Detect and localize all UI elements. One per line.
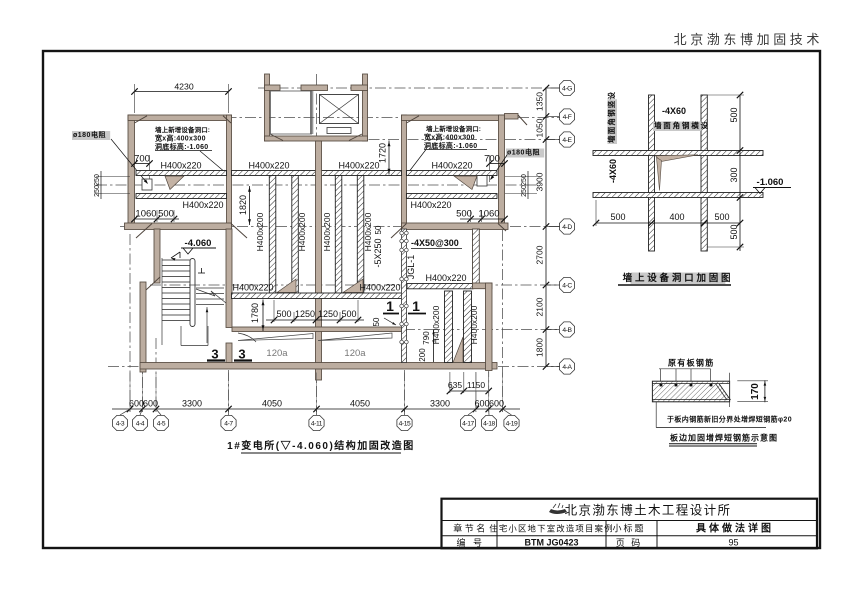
svg-text:600: 600 xyxy=(143,399,158,409)
svg-text:H400x220: H400x220 xyxy=(248,161,289,171)
svg-text:4-19: 4-19 xyxy=(506,420,518,427)
svg-text:170: 170 xyxy=(750,383,761,400)
svg-text:北京渤东博土木工程设计所: 北京渤东博土木工程设计所 xyxy=(565,503,732,518)
svg-text:50: 50 xyxy=(374,225,383,234)
svg-text:500: 500 xyxy=(610,212,625,222)
svg-text:4-3: 4-3 xyxy=(116,420,125,427)
svg-text:400: 400 xyxy=(669,212,684,222)
svg-text:600: 600 xyxy=(474,399,489,409)
svg-text:700: 700 xyxy=(484,154,500,165)
svg-text:4-5: 4-5 xyxy=(157,420,166,427)
svg-text:3300: 3300 xyxy=(182,399,202,409)
svg-text:H400x200: H400x200 xyxy=(297,212,307,251)
svg-text:500: 500 xyxy=(456,209,472,220)
svg-text:H400x200: H400x200 xyxy=(469,305,479,344)
svg-text:北京渤东博加固技术: 北京渤东博加固技术 xyxy=(674,32,823,47)
svg-text:95: 95 xyxy=(728,538,738,548)
svg-text:4-7: 4-7 xyxy=(224,420,233,427)
svg-text:120a: 120a xyxy=(266,348,288,359)
svg-text:500: 500 xyxy=(729,107,739,122)
svg-text:1250: 1250 xyxy=(295,309,315,319)
svg-text:洞底标高:-1.060: 洞底标高:-1.060 xyxy=(155,142,208,151)
svg-text:2100: 2100 xyxy=(535,297,545,316)
svg-text:墙面角钢横设: 墙面角钢横设 xyxy=(654,120,710,130)
svg-text:300: 300 xyxy=(729,167,739,182)
svg-text:H400x200: H400x200 xyxy=(363,212,373,251)
svg-text:1: 1 xyxy=(412,298,420,314)
svg-text:住宅小区地下室改造项目案例: 住宅小区地下室改造项目案例 xyxy=(489,524,613,534)
svg-text:BTM JG0423: BTM JG0423 xyxy=(524,538,578,548)
svg-text:H400x220: H400x220 xyxy=(338,161,379,171)
svg-text:4-B: 4-B xyxy=(562,327,572,334)
svg-text:-4X60: -4X60 xyxy=(662,106,686,116)
svg-text:250: 250 xyxy=(521,174,528,186)
svg-text:500: 500 xyxy=(714,212,729,222)
svg-text:120a: 120a xyxy=(344,348,366,359)
svg-text:1#变电所(▽-4.060)结构加固改造图: 1#变电所(▽-4.060)结构加固改造图 xyxy=(227,439,415,452)
svg-text:墙上新增设备洞口:: 墙上新增设备洞口: xyxy=(426,124,481,133)
svg-text:4-17: 4-17 xyxy=(462,420,474,427)
svg-text:700: 700 xyxy=(134,154,150,165)
svg-text:墙上新增设备洞口:: 墙上新增设备洞口: xyxy=(155,125,210,134)
svg-text:250: 250 xyxy=(94,174,101,186)
svg-text:小标题: 小标题 xyxy=(612,523,645,534)
svg-text:4-11: 4-11 xyxy=(311,420,323,427)
svg-text:H400x200: H400x200 xyxy=(431,305,441,344)
svg-text:250: 250 xyxy=(521,185,528,197)
svg-text:ø180电阻: ø180电阻 xyxy=(507,148,540,157)
svg-text:ø180电阻: ø180电阻 xyxy=(73,130,106,139)
svg-text:章节名: 章节名 xyxy=(453,523,488,534)
svg-text:-4.060: -4.060 xyxy=(185,238,212,249)
svg-text:-4X60: -4X60 xyxy=(608,159,618,183)
svg-text:4050: 4050 xyxy=(350,399,370,409)
svg-text:墙上设备洞口加固图: 墙上设备洞口加固图 xyxy=(623,272,734,284)
svg-text:3: 3 xyxy=(211,347,218,362)
svg-text:H400x220: H400x220 xyxy=(425,273,466,283)
svg-text:宽x高:400x300: 宽x高:400x300 xyxy=(423,133,475,142)
svg-text:洞底标高:-1.060: 洞底标高:-1.060 xyxy=(424,141,477,150)
svg-text:4-15: 4-15 xyxy=(399,420,411,427)
svg-text:页 码: 页 码 xyxy=(616,538,643,548)
svg-text:墙面角钢竖设: 墙面角钢竖设 xyxy=(606,91,616,143)
svg-text:4-C: 4-C xyxy=(562,282,572,289)
svg-text:H400x200: H400x200 xyxy=(255,212,265,251)
svg-text:250: 250 xyxy=(94,185,101,197)
svg-text:500: 500 xyxy=(276,309,291,319)
svg-text:1720: 1720 xyxy=(378,143,388,163)
svg-text:4-4: 4-4 xyxy=(136,420,145,427)
svg-text:1780: 1780 xyxy=(250,303,260,323)
svg-text:3900: 3900 xyxy=(535,172,545,191)
svg-text:板边加固增焊短钢筋示意图: 板边加固增焊短钢筋示意图 xyxy=(670,433,778,443)
svg-text:1350: 1350 xyxy=(535,92,545,111)
svg-text:-4X50@300: -4X50@300 xyxy=(411,238,459,248)
svg-text:2700: 2700 xyxy=(535,245,545,264)
svg-text:H400x220: H400x220 xyxy=(431,161,472,171)
svg-text:4-G: 4-G xyxy=(562,85,572,92)
svg-text:1050: 1050 xyxy=(535,118,545,137)
svg-text:-5X250: -5X250 xyxy=(373,238,383,267)
svg-text:4-E: 4-E xyxy=(562,137,572,144)
svg-text:H400x220: H400x220 xyxy=(410,200,451,210)
svg-text:500: 500 xyxy=(341,309,356,319)
svg-text:790: 790 xyxy=(422,331,431,345)
svg-text:500: 500 xyxy=(158,209,174,220)
svg-text:1: 1 xyxy=(386,298,394,314)
svg-text:500: 500 xyxy=(729,224,739,239)
svg-text:1800: 1800 xyxy=(535,338,545,357)
svg-text:宽x高:400x300: 宽x高:400x300 xyxy=(154,134,206,143)
svg-text:-1.060: -1.060 xyxy=(757,177,784,188)
svg-text:于板内钢筋新旧分界处增焊短钢筋φ20: 于板内钢筋新旧分界处增焊短钢筋φ20 xyxy=(667,415,792,424)
svg-text:4050: 4050 xyxy=(262,399,282,409)
svg-text:H400x220: H400x220 xyxy=(359,283,400,293)
svg-text:H400x220: H400x220 xyxy=(160,161,201,171)
svg-text:H400x220: H400x220 xyxy=(232,283,273,293)
svg-text:600: 600 xyxy=(129,399,144,409)
svg-text:H400x220: H400x220 xyxy=(182,200,223,210)
svg-text:H400x200: H400x200 xyxy=(322,212,332,251)
svg-text:3300: 3300 xyxy=(430,399,450,409)
svg-text:4-18: 4-18 xyxy=(483,420,495,427)
svg-text:1820: 1820 xyxy=(238,195,248,215)
svg-text:4-D: 4-D xyxy=(562,224,572,231)
svg-text:600: 600 xyxy=(489,399,504,409)
svg-text:50: 50 xyxy=(372,317,381,326)
svg-text:具体做法详图: 具体做法详图 xyxy=(695,522,774,535)
svg-text:4230: 4230 xyxy=(174,82,193,92)
svg-text:4-F: 4-F xyxy=(563,114,572,121)
svg-text:JGL-1: JGL-1 xyxy=(406,255,416,280)
svg-text:编 号: 编 号 xyxy=(456,537,484,548)
svg-text:1060: 1060 xyxy=(478,209,499,220)
svg-text:原有板钢筋: 原有板钢筋 xyxy=(668,358,715,368)
svg-text:200: 200 xyxy=(418,348,427,362)
svg-text:1250: 1250 xyxy=(318,309,338,319)
svg-text:4-A: 4-A xyxy=(562,364,572,371)
svg-text:635: 635 xyxy=(448,380,462,390)
svg-text:1060: 1060 xyxy=(135,209,156,220)
svg-text:3: 3 xyxy=(238,347,245,362)
